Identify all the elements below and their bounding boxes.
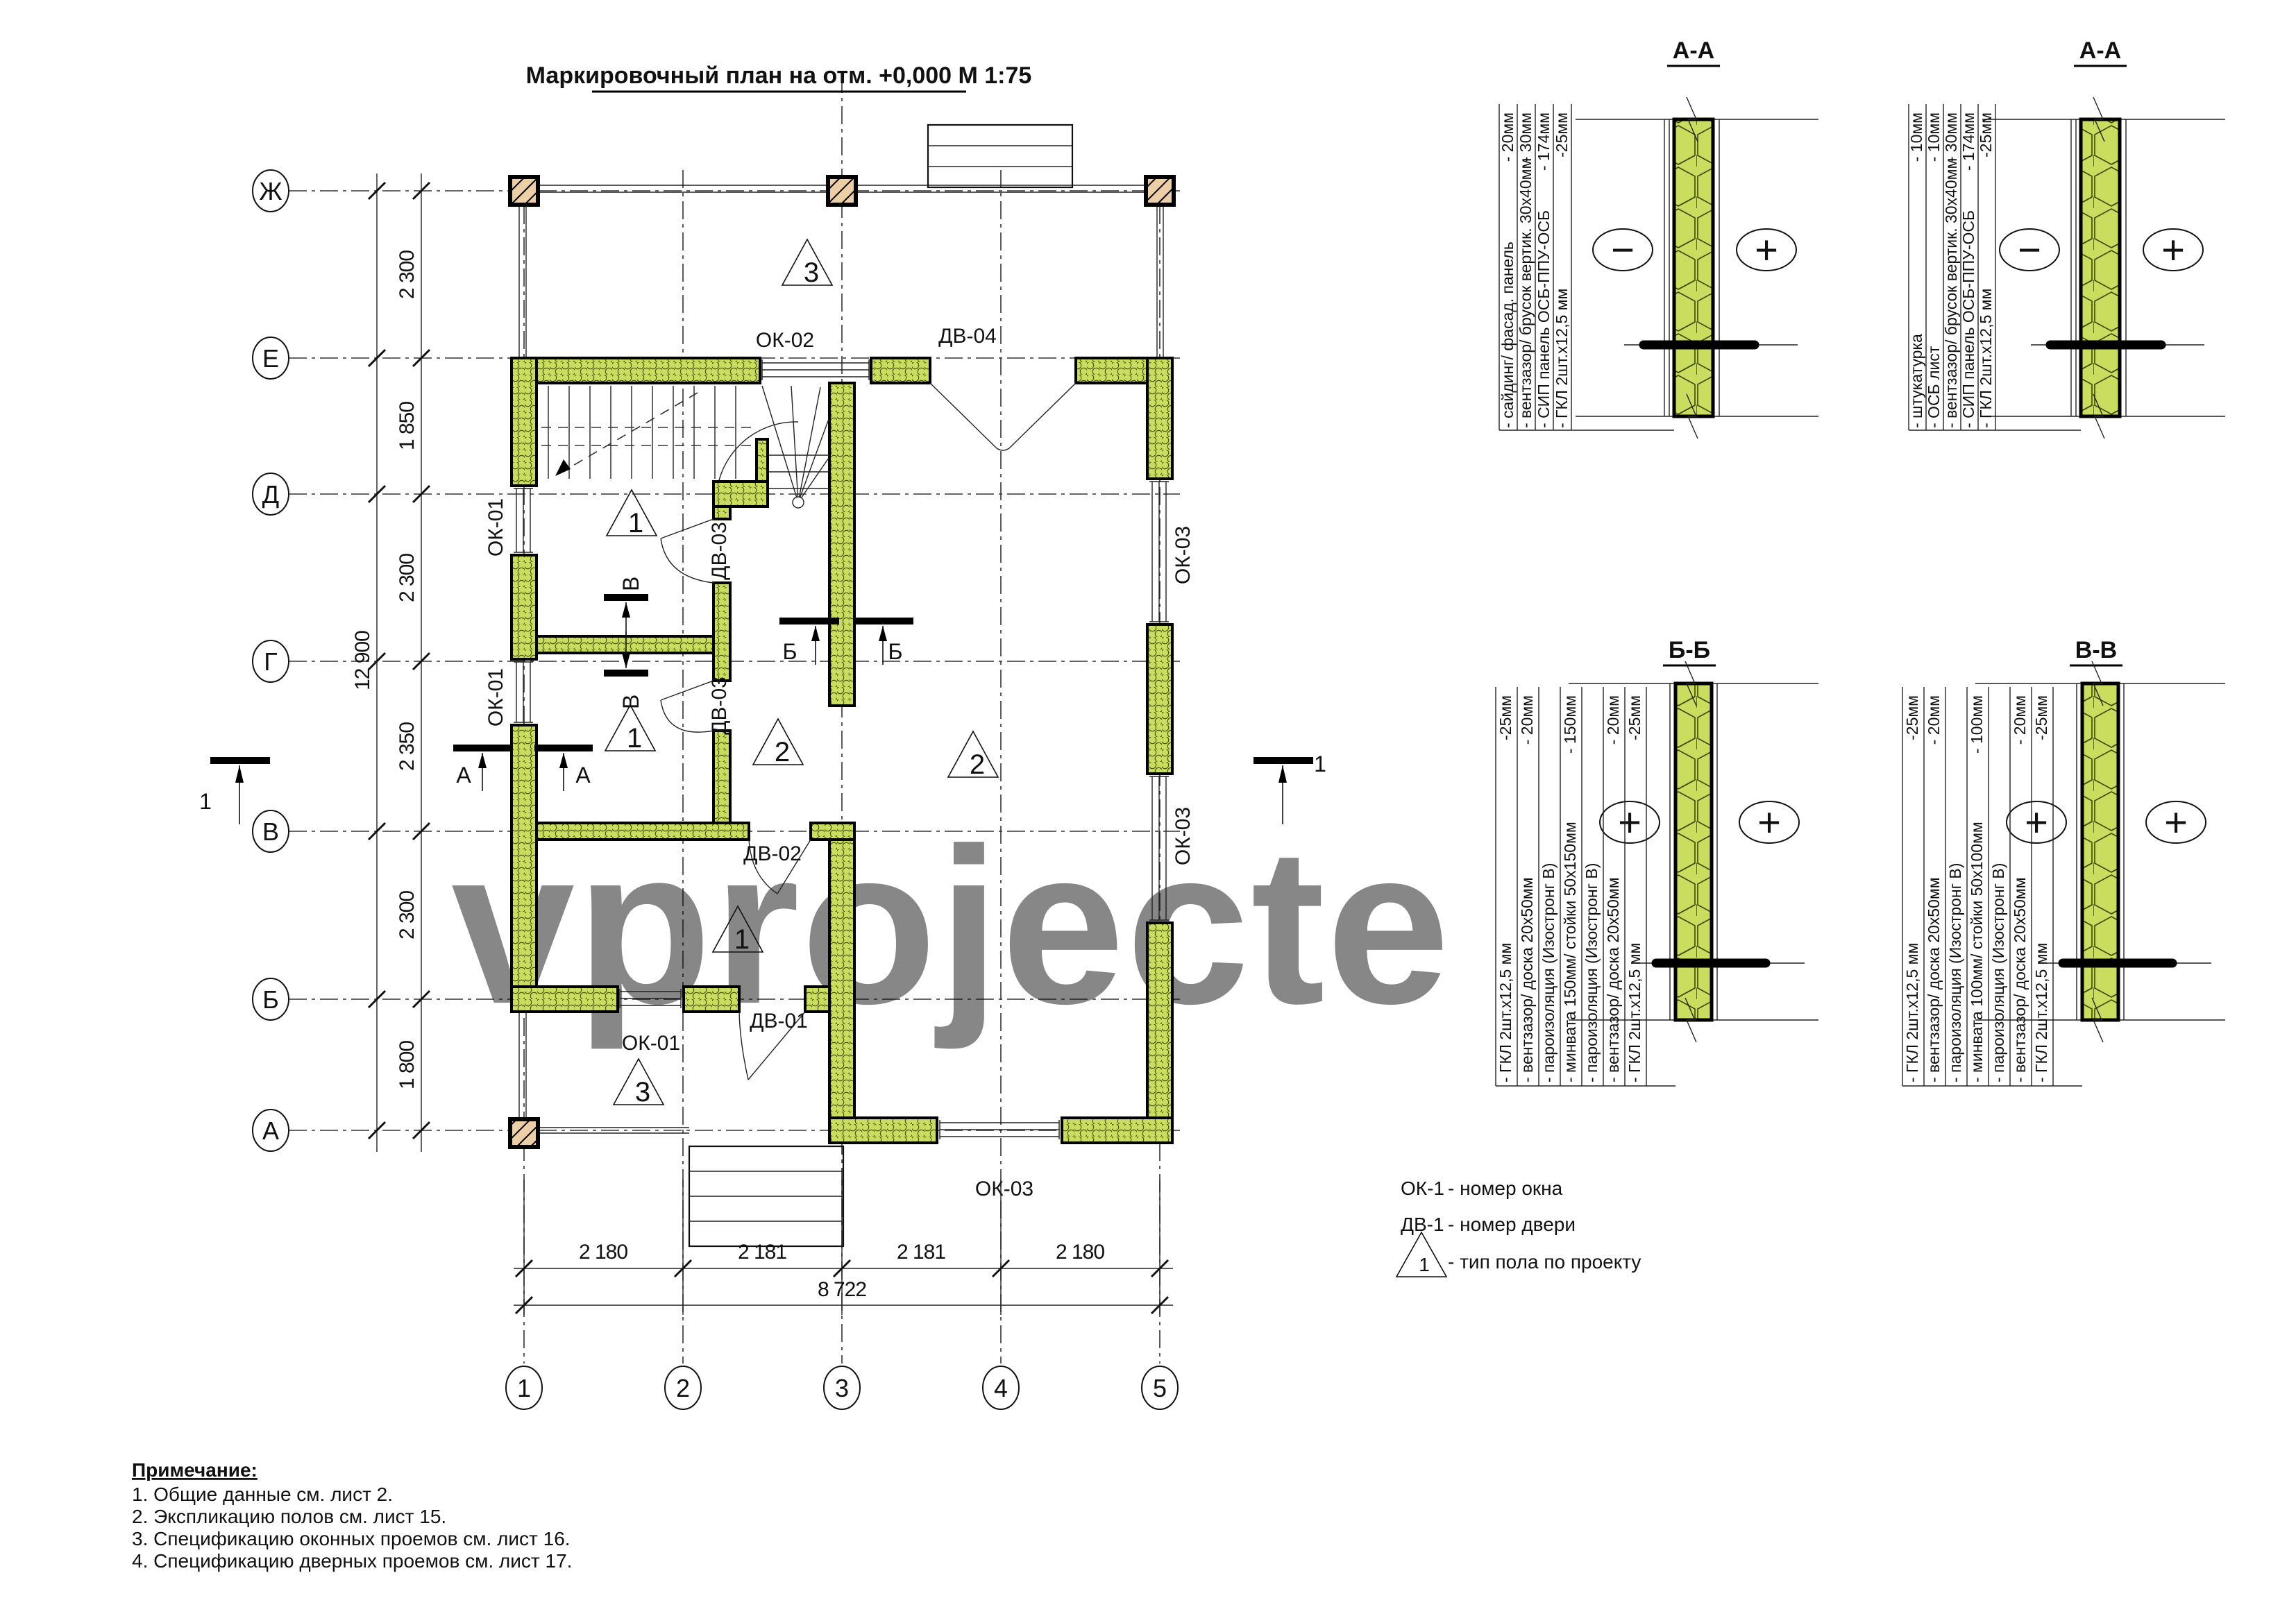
label-ok03-bottom: ОК-03 bbox=[975, 1178, 1033, 1200]
svg-text:- 174мм: - 174мм bbox=[1535, 112, 1553, 171]
svg-text:-25мм: -25мм bbox=[1626, 695, 1644, 740]
svg-text:- вентзазор/ брусок вертик. 30: - вентзазор/ брусок вертик. 30х40мм bbox=[1942, 158, 1960, 428]
svg-text:- вентзазор/ брусок вертик. 30: - вентзазор/ брусок вертик. 30х40мм bbox=[1517, 158, 1535, 428]
cut-marker-b-right: Б bbox=[854, 618, 913, 665]
svg-text:А: А bbox=[575, 763, 591, 788]
svg-text:- СИП панель ОСБ-ППУ-ОСБ: - СИП панель ОСБ-ППУ-ОСБ bbox=[1959, 210, 1977, 428]
window-ok03-bottom bbox=[940, 1120, 1059, 1139]
svg-text:В: В bbox=[618, 577, 643, 591]
svg-text:2: 2 bbox=[970, 749, 985, 780]
window-ok02 bbox=[762, 359, 869, 380]
dim-bottom-total: 8 722 bbox=[818, 1278, 866, 1301]
svg-text:2: 2 bbox=[775, 737, 790, 767]
floor-marker: 3 bbox=[782, 239, 832, 288]
axis-letter: В bbox=[262, 817, 279, 846]
axis-letter: Ж bbox=[259, 177, 282, 205]
label-ok03-top: ОК-03 bbox=[1172, 526, 1195, 584]
svg-text:-25мм: -25мм bbox=[2032, 695, 2050, 740]
window-ok01-top bbox=[514, 488, 533, 552]
dim-left: 2 300 bbox=[396, 891, 419, 940]
svg-text:1: 1 bbox=[734, 924, 750, 955]
section-a-a-1: А-А − + - сайдинг/ фасад. панель - 20мм … bbox=[1499, 37, 1818, 439]
plus-sign: + bbox=[2025, 800, 2048, 845]
svg-text:- 10мм: - 10мм bbox=[1925, 112, 1943, 162]
svg-text:-25мм: -25мм bbox=[1553, 112, 1571, 158]
axis-number: 5 bbox=[1153, 1374, 1167, 1402]
dim-left: 1 850 bbox=[396, 402, 419, 450]
svg-text:-25мм: -25мм bbox=[1903, 695, 1921, 740]
svg-text:- ОСБ лист: - ОСБ лист bbox=[1925, 346, 1943, 428]
minus-sign: − bbox=[2018, 228, 2041, 273]
svg-text:- вентзазор/ доска 20х50мм: - вентзазор/ доска 20х50мм bbox=[1518, 877, 1536, 1082]
svg-text:- 30мм: - 30мм bbox=[1517, 112, 1535, 162]
dim-left: 2 350 bbox=[396, 722, 419, 771]
legend-floor-desc: - тип пола по проекту bbox=[1448, 1251, 1641, 1273]
door-dv03-bottom bbox=[661, 681, 714, 732]
axis-number: 2 bbox=[676, 1374, 690, 1402]
svg-text:- 20мм: - 20мм bbox=[2011, 695, 2029, 745]
floor-marker: 1 bbox=[605, 705, 655, 754]
plus-sign: + bbox=[1757, 800, 1781, 845]
porch-post bbox=[1146, 177, 1174, 205]
svg-text:- штукатурка: - штукатурка bbox=[1907, 334, 1925, 428]
svg-text:- 20мм: - 20мм bbox=[1499, 112, 1517, 162]
section-a-a-2: А-А − + - штукатурка - 10мм - ОСБ лист -… bbox=[1907, 37, 2225, 439]
dim-bottom: 2 180 bbox=[579, 1241, 627, 1264]
axis-number: 4 bbox=[994, 1374, 1008, 1402]
cut-marker-a-right: А bbox=[534, 745, 593, 791]
svg-text:- вентзазор/ доска 20х50мм: - вентзазор/ доска 20х50мм bbox=[1604, 877, 1622, 1082]
svg-text:А-А: А-А bbox=[1673, 37, 1714, 64]
svg-text:3: 3 bbox=[635, 1077, 650, 1107]
svg-text:В-В: В-В bbox=[2075, 637, 2117, 663]
svg-text:- вентзазор/ доска 20х50мм: - вентзазор/ доска 20х50мм bbox=[1925, 877, 1943, 1082]
sheet-title: Маркировочный план на отм. +0,000 М 1:75 bbox=[526, 62, 1032, 92]
svg-text:Б: Б bbox=[888, 639, 903, 664]
svg-text:- вентзазор/ доска 20х50мм: - вентзазор/ доска 20х50мм bbox=[2011, 877, 2029, 1082]
svg-text:3: 3 bbox=[804, 257, 819, 288]
plus-sign: + bbox=[2161, 228, 2185, 273]
label-dv03-bottom: ДВ-03 bbox=[708, 677, 731, 735]
svg-text:А: А bbox=[456, 763, 471, 788]
axis-letter: Г bbox=[264, 647, 278, 676]
section-b-b: Б-Б + + - ГКЛ 2шт.х12,5 мм -25мм - вентз… bbox=[1496, 637, 1818, 1086]
door-dv03-top bbox=[661, 519, 714, 583]
dim-left: 1 800 bbox=[396, 1041, 419, 1089]
notes: Примечание: 1. Общие данные см. лист 2. … bbox=[132, 1459, 572, 1572]
legend-door-desc: - номер двери bbox=[1448, 1214, 1576, 1235]
svg-text:1: 1 bbox=[1314, 751, 1326, 776]
dim-left-total: 12 900 bbox=[351, 631, 374, 690]
floor-marker: 3 bbox=[614, 1059, 664, 1107]
porch-post bbox=[828, 177, 856, 205]
svg-text:- 20мм: - 20мм bbox=[1925, 695, 1943, 745]
plus-sign: + bbox=[2164, 800, 2188, 845]
svg-text:- минвата 100мм/ стойки 50х100: - минвата 100мм/ стойки 50х100мм bbox=[1968, 822, 1986, 1082]
axis-letter: Б bbox=[262, 985, 279, 1014]
legend-door-code: ДВ-1 bbox=[1401, 1214, 1444, 1235]
window-ok03-top bbox=[1149, 482, 1169, 622]
svg-text:- ГКЛ 2шт.х12,5 мм: - ГКЛ 2шт.х12,5 мм bbox=[1977, 289, 1995, 428]
cut-marker-a-left: А bbox=[453, 745, 512, 791]
cut-marker-v-upper: В bbox=[604, 577, 648, 638]
svg-text:- СИП панель ОСБ-ППУ-ОСБ: - СИП панель ОСБ-ППУ-ОСБ bbox=[1535, 210, 1553, 428]
section-v-v: В-В + + - ГКЛ 2шт.х12,5 мм -25мм - вентз… bbox=[1902, 637, 2225, 1086]
dim-left: 2 300 bbox=[396, 554, 419, 602]
dim-bottom: 2 180 bbox=[1056, 1241, 1104, 1264]
svg-text:- 174мм: - 174мм bbox=[1959, 112, 1977, 171]
axis-letter: Е bbox=[262, 344, 279, 373]
svg-text:- 10мм: - 10мм bbox=[1907, 112, 1925, 162]
axis-letter: А bbox=[262, 1116, 279, 1145]
legend: ОК-1 - номер окна ДВ-1 - номер двери 1 -… bbox=[1396, 1178, 1641, 1277]
window-ok01-bottom bbox=[620, 989, 681, 1008]
svg-text:А-А: А-А bbox=[2079, 37, 2121, 64]
label-ok03-mid: ОК-03 bbox=[1172, 807, 1195, 865]
axis-letter: Д bbox=[262, 480, 279, 509]
note-item: 4. Спецификацию дверных проемов см. лист… bbox=[132, 1550, 572, 1572]
svg-text:- 20мм: - 20мм bbox=[1518, 695, 1536, 745]
plus-sign: + bbox=[1618, 800, 1641, 845]
label-dv01: ДВ-01 bbox=[750, 1010, 808, 1033]
axis-number: 1 bbox=[517, 1374, 531, 1402]
svg-text:1: 1 bbox=[199, 789, 212, 814]
label-dv02: ДВ-02 bbox=[743, 842, 802, 865]
axis-number: 3 bbox=[835, 1374, 849, 1402]
legend-window-code: ОК-1 bbox=[1401, 1178, 1444, 1199]
label-ok01-mid: ОК-01 bbox=[484, 668, 507, 726]
sheet: { "title": "Маркировочный план на отм. +… bbox=[0, 0, 2296, 1623]
svg-text:1: 1 bbox=[628, 508, 643, 538]
window-ok01-mid bbox=[514, 662, 533, 722]
svg-text:Б-Б: Б-Б bbox=[1669, 637, 1710, 663]
label-dv04: ДВ-04 bbox=[938, 325, 997, 348]
exterior-steps-top bbox=[928, 125, 1072, 187]
svg-text:- 100мм: - 100мм bbox=[1968, 695, 1986, 754]
floor-marker: 2 bbox=[753, 719, 803, 767]
note-item: 1. Общие данные см. лист 2. bbox=[132, 1484, 393, 1505]
label-ok01-top: ОК-01 bbox=[484, 498, 507, 556]
porch-post bbox=[510, 1119, 538, 1147]
svg-text:- пароизоляция (Изостронг В): - пароизоляция (Изостронг В) bbox=[1946, 863, 1964, 1082]
minus-sign: − bbox=[1611, 228, 1635, 273]
svg-text:Маркировочный план на отм. +0,: Маркировочный план на отм. +0,000 М 1:75 bbox=[526, 62, 1032, 89]
svg-text:В: В bbox=[618, 695, 643, 709]
svg-text:1: 1 bbox=[627, 723, 642, 754]
svg-text:- минвата 150мм/ стойки 50х150: - минвата 150мм/ стойки 50х150мм bbox=[1561, 822, 1579, 1082]
svg-text:- 150мм: - 150мм bbox=[1561, 695, 1579, 754]
porch-post bbox=[510, 177, 538, 205]
svg-text:- сайдинг/ фасад. панель: - сайдинг/ фасад. панель bbox=[1499, 241, 1517, 428]
window-ok03-mid bbox=[1149, 776, 1169, 920]
svg-text:- ГКЛ 2шт.х12,5 мм: - ГКЛ 2шт.х12,5 мм bbox=[2032, 943, 2050, 1082]
svg-text:- ГКЛ 2шт.х12,5 мм: - ГКЛ 2шт.х12,5 мм bbox=[1626, 943, 1644, 1082]
staircase bbox=[541, 386, 829, 508]
svg-text:Б: Б bbox=[783, 639, 797, 664]
label-ok02: ОК-02 bbox=[756, 329, 814, 352]
legend-floor-code: 1 bbox=[1419, 1254, 1430, 1275]
label-ok01-bottom: ОК-01 bbox=[622, 1032, 680, 1055]
svg-text:- пароизоляция (Изостронг В): - пароизоляция (Изостронг В) bbox=[1989, 863, 2007, 1082]
floor-marker: 1 bbox=[607, 490, 657, 538]
note-item: 2. Экспликацию полов см. лист 15. bbox=[132, 1506, 446, 1527]
dim-bottom: 2 181 bbox=[738, 1241, 786, 1264]
svg-text:- ГКЛ 2шт.х12,5 мм: - ГКЛ 2шт.х12,5 мм bbox=[1903, 943, 1921, 1082]
legend-window-desc: - номер окна bbox=[1448, 1178, 1563, 1199]
plus-sign: + bbox=[1755, 228, 1778, 273]
svg-text:-25мм: -25мм bbox=[1977, 112, 1995, 158]
svg-text:- ГКЛ 2шт.х12,5 мм: - ГКЛ 2шт.х12,5 мм bbox=[1496, 943, 1514, 1082]
svg-text:- пароизоляция (Изостронг В): - пароизоляция (Изостронг В) bbox=[1582, 863, 1601, 1082]
svg-text:- ГКЛ 2шт.х12,5 мм: - ГКЛ 2шт.х12,5 мм bbox=[1553, 289, 1571, 428]
dim-bottom: 2 181 bbox=[897, 1241, 945, 1264]
svg-text:- 20мм: - 20мм bbox=[1604, 695, 1622, 745]
grid-lines bbox=[289, 75, 1180, 1363]
floor-marker: 2 bbox=[948, 731, 998, 780]
label-dv03-top: ДВ-03 bbox=[708, 522, 731, 580]
svg-text:-25мм: -25мм bbox=[1496, 695, 1514, 740]
door-dv04 bbox=[930, 383, 1076, 450]
svg-text:- пароизоляция (Изостронг В): - пароизоляция (Изостронг В) bbox=[1539, 863, 1558, 1082]
drawing-canvas: vprojecte bbox=[0, 0, 2296, 1623]
dim-left: 2 300 bbox=[396, 250, 419, 299]
svg-text:- 30мм: - 30мм bbox=[1942, 112, 1960, 162]
note-item: 3. Спецификацию оконных проемов см. лист… bbox=[132, 1528, 571, 1549]
notes-heading: Примечание: bbox=[132, 1459, 258, 1481]
